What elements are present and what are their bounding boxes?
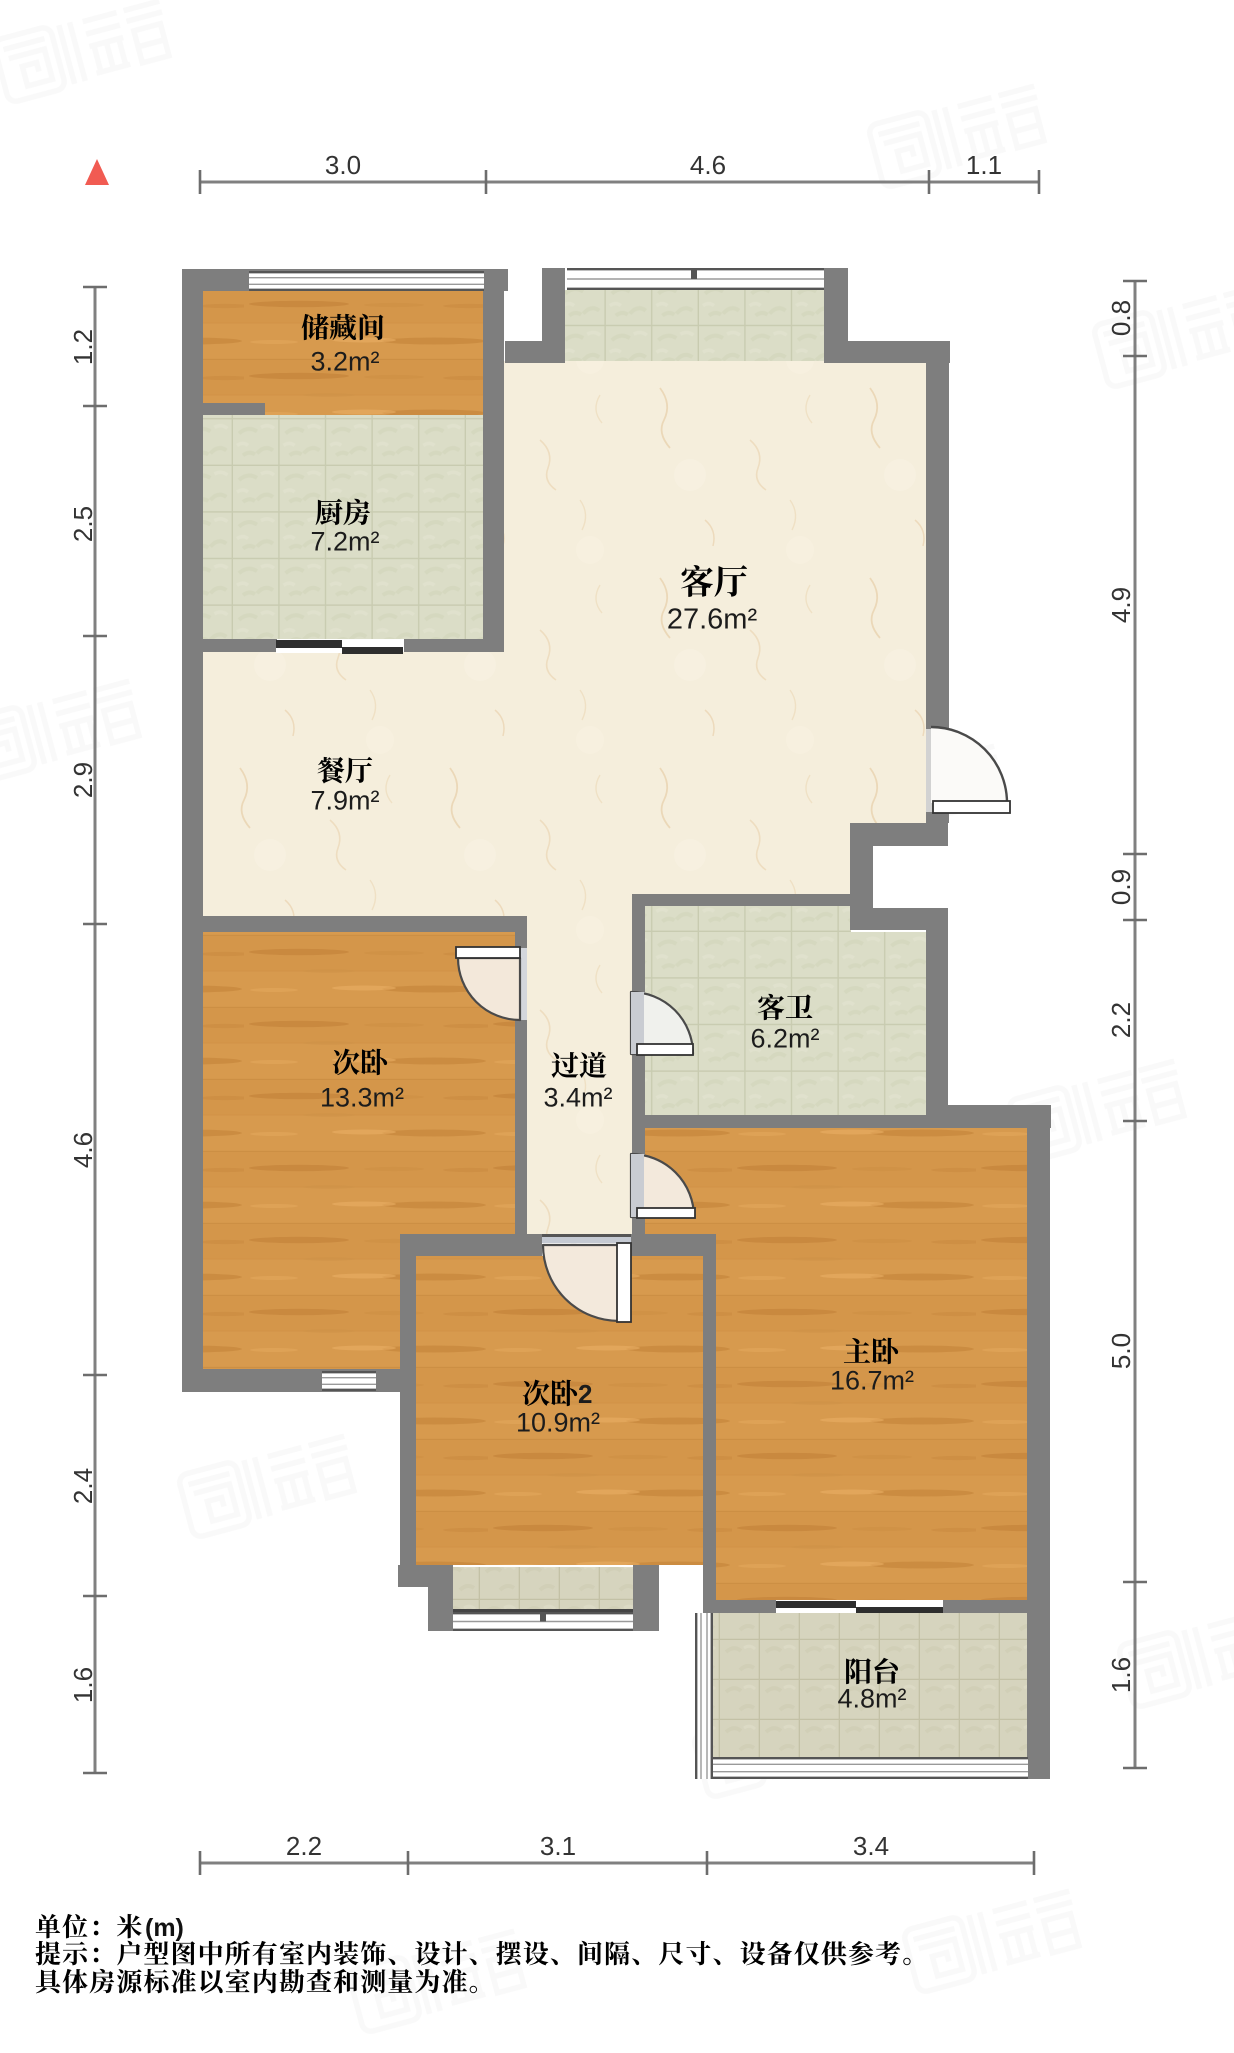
svg-text:27.6m²: 27.6m² <box>667 603 758 635</box>
svg-text:3.1: 3.1 <box>540 1831 576 1861</box>
svg-text:10.9m²: 10.9m² <box>516 1408 600 1438</box>
svg-text:3.2m²: 3.2m² <box>310 347 379 377</box>
svg-text:4.9: 4.9 <box>1106 587 1136 623</box>
svg-text:2.2: 2.2 <box>1106 1002 1136 1038</box>
svg-text:0.9: 0.9 <box>1106 869 1136 905</box>
svg-text:3.4m²: 3.4m² <box>543 1083 612 1113</box>
svg-text:2.5: 2.5 <box>68 506 98 542</box>
svg-text:3.4: 3.4 <box>853 1831 889 1861</box>
svg-text:6.2m²: 6.2m² <box>750 1024 819 1054</box>
svg-text:2: 2 <box>578 1379 592 1409</box>
svg-text:3.0: 3.0 <box>325 150 361 180</box>
svg-text:1.1: 1.1 <box>966 150 1002 180</box>
svg-text:2.4: 2.4 <box>68 1468 98 1504</box>
svg-text:1.2: 1.2 <box>68 329 98 365</box>
svg-text:4.6: 4.6 <box>68 1132 98 1168</box>
svg-text:13.3m²: 13.3m² <box>320 1083 404 1113</box>
svg-text:0.8: 0.8 <box>1106 300 1136 336</box>
svg-text:16.7m²: 16.7m² <box>830 1366 914 1396</box>
svg-text:2.2: 2.2 <box>286 1831 322 1861</box>
svg-text:7.9m²: 7.9m² <box>310 786 379 816</box>
svg-text:1.6: 1.6 <box>68 1667 98 1703</box>
svg-text:7.2m²: 7.2m² <box>310 527 379 557</box>
svg-text:1.6: 1.6 <box>1106 1657 1136 1693</box>
svg-text:4.6: 4.6 <box>690 150 726 180</box>
svg-text:(m): (m) <box>145 1914 184 1942</box>
svg-text:4.8m²: 4.8m² <box>837 1684 906 1714</box>
svg-text:5.0: 5.0 <box>1106 1333 1136 1369</box>
svg-text:2.9: 2.9 <box>68 762 98 798</box>
